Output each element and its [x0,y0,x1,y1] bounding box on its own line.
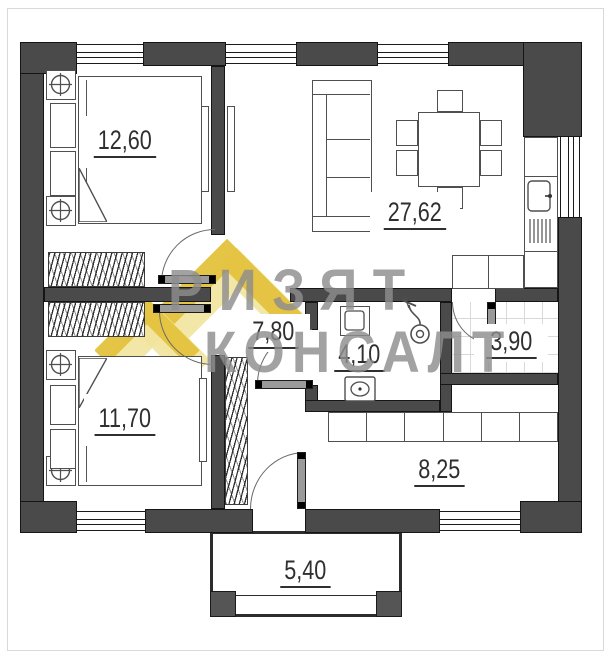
wall-right [558,217,582,533]
pillow [50,103,76,148]
nightstand [46,350,76,380]
chair [396,120,418,146]
counter-cell [489,256,524,288]
chair [480,150,502,176]
chair [396,150,418,176]
wall-bottom-segment-2 [305,509,440,533]
wall-corner-bottom-left [20,501,77,533]
window-living-2 [378,44,448,64]
wall-panel [227,106,235,192]
area-value: 27,62 [384,199,446,230]
cabinet-cell [520,413,557,441]
entry-cabinets [328,412,558,442]
wall-panel [199,378,207,462]
wall-corner-bottom-right [520,501,582,533]
nightstand [46,196,76,226]
wall-left [20,42,44,533]
porch-dimension: 5,40 [266,552,344,592]
sofa [312,80,372,232]
porch-pillar-left [210,591,236,617]
room-label-bedroom-bottom: 11,70 [84,394,166,446]
nightstand [46,70,76,100]
counter-cell [453,256,489,288]
wall-corner-top-right [523,42,582,137]
area-value: 12,60 [94,127,156,158]
window-bedroom-bottom [77,511,145,531]
wall-top-segment-1 [143,42,226,66]
door-leaf-entry [297,452,306,509]
area-value: 11,70 [95,405,155,436]
window-living-1 [226,44,296,64]
counter-cell [525,252,557,287]
floor-plan: 12,60 11,70 27,62 [0,0,608,658]
cabinet-cell [367,413,405,441]
wall-bottom-segment-1 [145,509,253,533]
dimension-value: 5,40 [280,557,330,588]
wardrobe-bedroom-bottom [48,302,145,337]
cabinet-cell [329,413,367,441]
window-bedroom-top [77,44,143,64]
window-kitchen-right [560,137,580,217]
blanket-fold [79,168,107,222]
kitchen-counter-column [524,137,558,288]
watermark-line-1: РИЗЯТ [168,262,420,320]
window-entry [440,511,520,531]
cabinet-cell [444,413,482,441]
pillow [50,429,76,469]
pillow [50,151,76,196]
pillow [50,385,76,425]
wardrobe-bedroom-top [48,252,145,287]
wall-utility-top [495,288,558,302]
chair [480,120,502,146]
room-label-bedroom-top: 12,60 [84,116,166,168]
porch-pillar-right [376,591,402,617]
dining-table [418,112,480,187]
cabinet-cell [405,413,443,441]
room-label-living: 27,62 [370,192,460,236]
chair [437,90,463,112]
cabinet-cell [482,413,520,441]
kitchen-sink-unit [525,177,557,252]
kitchen-counter-row [452,255,524,289]
area-value: 8,25 [414,456,464,487]
wall-bedroom-top-living [211,66,225,235]
counter-cell [525,138,557,177]
porch-step [230,595,380,615]
wall-panel [201,106,209,192]
watermark-line-2: КОНСАЛТ [204,324,511,382]
wall-top-segment-2 [296,42,378,66]
room-label-entry: 8,25 [402,450,476,492]
